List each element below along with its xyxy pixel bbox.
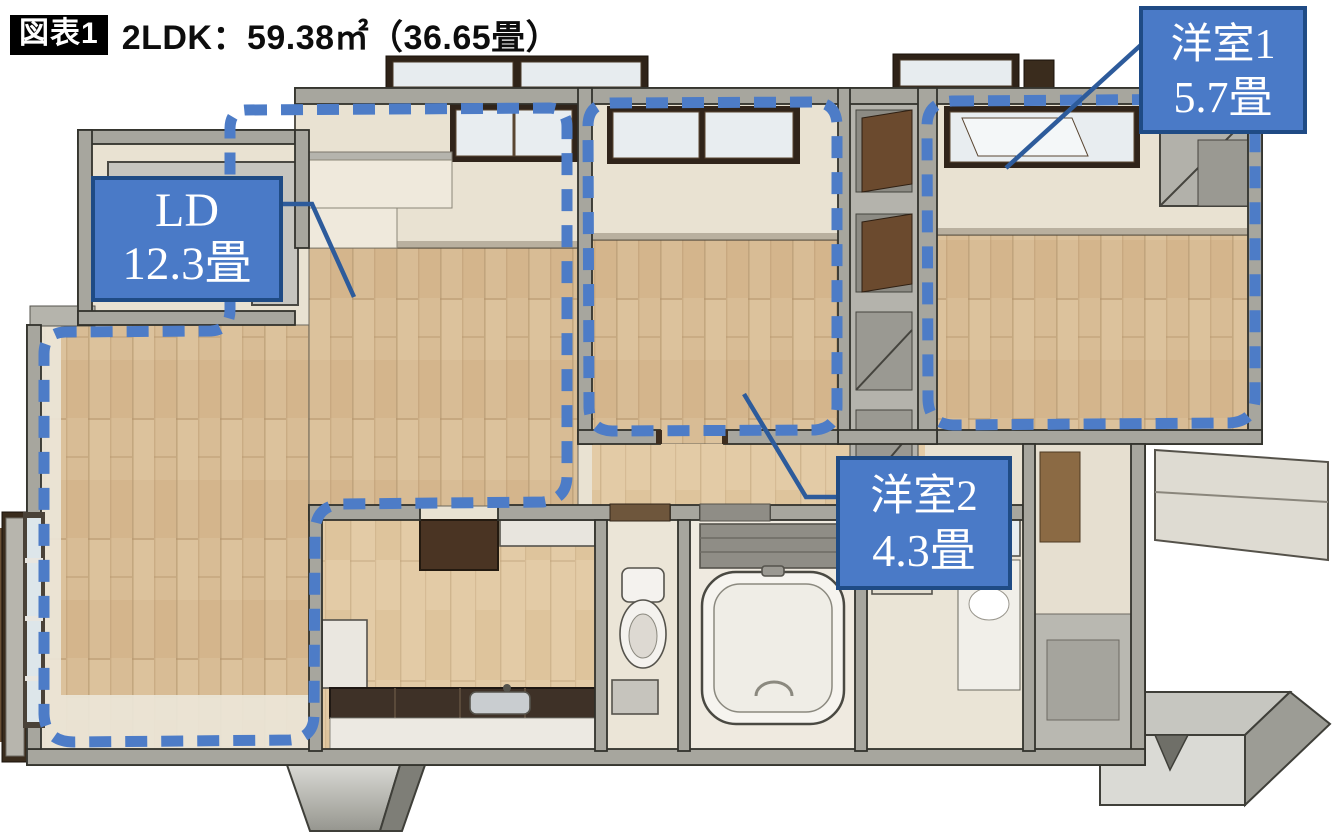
shoe-cabinet <box>1040 452 1080 542</box>
wall-washroom-entrance <box>1023 444 1035 751</box>
western2-label-area: 4.3畳 <box>872 525 976 576</box>
western2-wall-shadow <box>592 233 838 241</box>
wall-alcove-south <box>78 311 295 325</box>
western2-window <box>607 106 800 164</box>
building-foot <box>287 765 425 831</box>
western1-label-area: 5.7畳 <box>1174 73 1273 122</box>
floorplan-canvas: LD 12.3畳 洋室1 5.7畳 洋室2 4.3畳 <box>0 0 1340 837</box>
wall-closet-south <box>838 430 937 444</box>
right-side-panel <box>1155 450 1328 560</box>
western2-label-name: 洋室2 <box>870 472 978 520</box>
wall-alcove-east-stub <box>295 130 309 248</box>
bath-door <box>700 504 770 521</box>
closet-compartment <box>856 214 912 292</box>
western1-wall-shadow <box>937 228 1248 236</box>
bathtub <box>700 524 846 724</box>
ld-label-name: LD <box>155 184 219 237</box>
wall-hall-south-a <box>498 505 612 520</box>
figure-badge: 図表1 <box>10 15 108 55</box>
wall-toilet-bath <box>678 520 690 751</box>
kitchen-tall-cabinet <box>420 520 498 570</box>
wall-hall-south-b <box>670 505 700 520</box>
ld-label-area: 12.3畳 <box>122 238 251 290</box>
closet-compartment <box>856 312 912 390</box>
wall-east-lower <box>1131 444 1145 765</box>
wall-alcove-north <box>78 130 295 144</box>
entrance-mat <box>1047 640 1119 720</box>
ld-label: LD 12.3畳 <box>93 178 281 300</box>
page-title: 2LDK：59.38㎡（36.65畳） <box>122 10 560 59</box>
closet-compartment <box>856 110 912 192</box>
wall-western1-south <box>925 430 1262 444</box>
toilet-door <box>610 504 670 521</box>
western2-floor <box>592 240 838 444</box>
wall-kitchen-toilet <box>595 520 607 751</box>
western1-floor <box>937 235 1248 430</box>
ld-floor-wing <box>41 325 309 751</box>
wall-south <box>27 749 1145 765</box>
western2-label: 洋室2 4.3畳 <box>838 458 1010 588</box>
wall-alcove-west <box>78 130 92 325</box>
figure-title-bar: 図表1 2LDK：59.38㎡（36.65畳） <box>10 10 560 59</box>
western1-label: 洋室1 5.7畳 <box>1141 8 1305 132</box>
western1-label-name: 洋室1 <box>1170 21 1275 68</box>
